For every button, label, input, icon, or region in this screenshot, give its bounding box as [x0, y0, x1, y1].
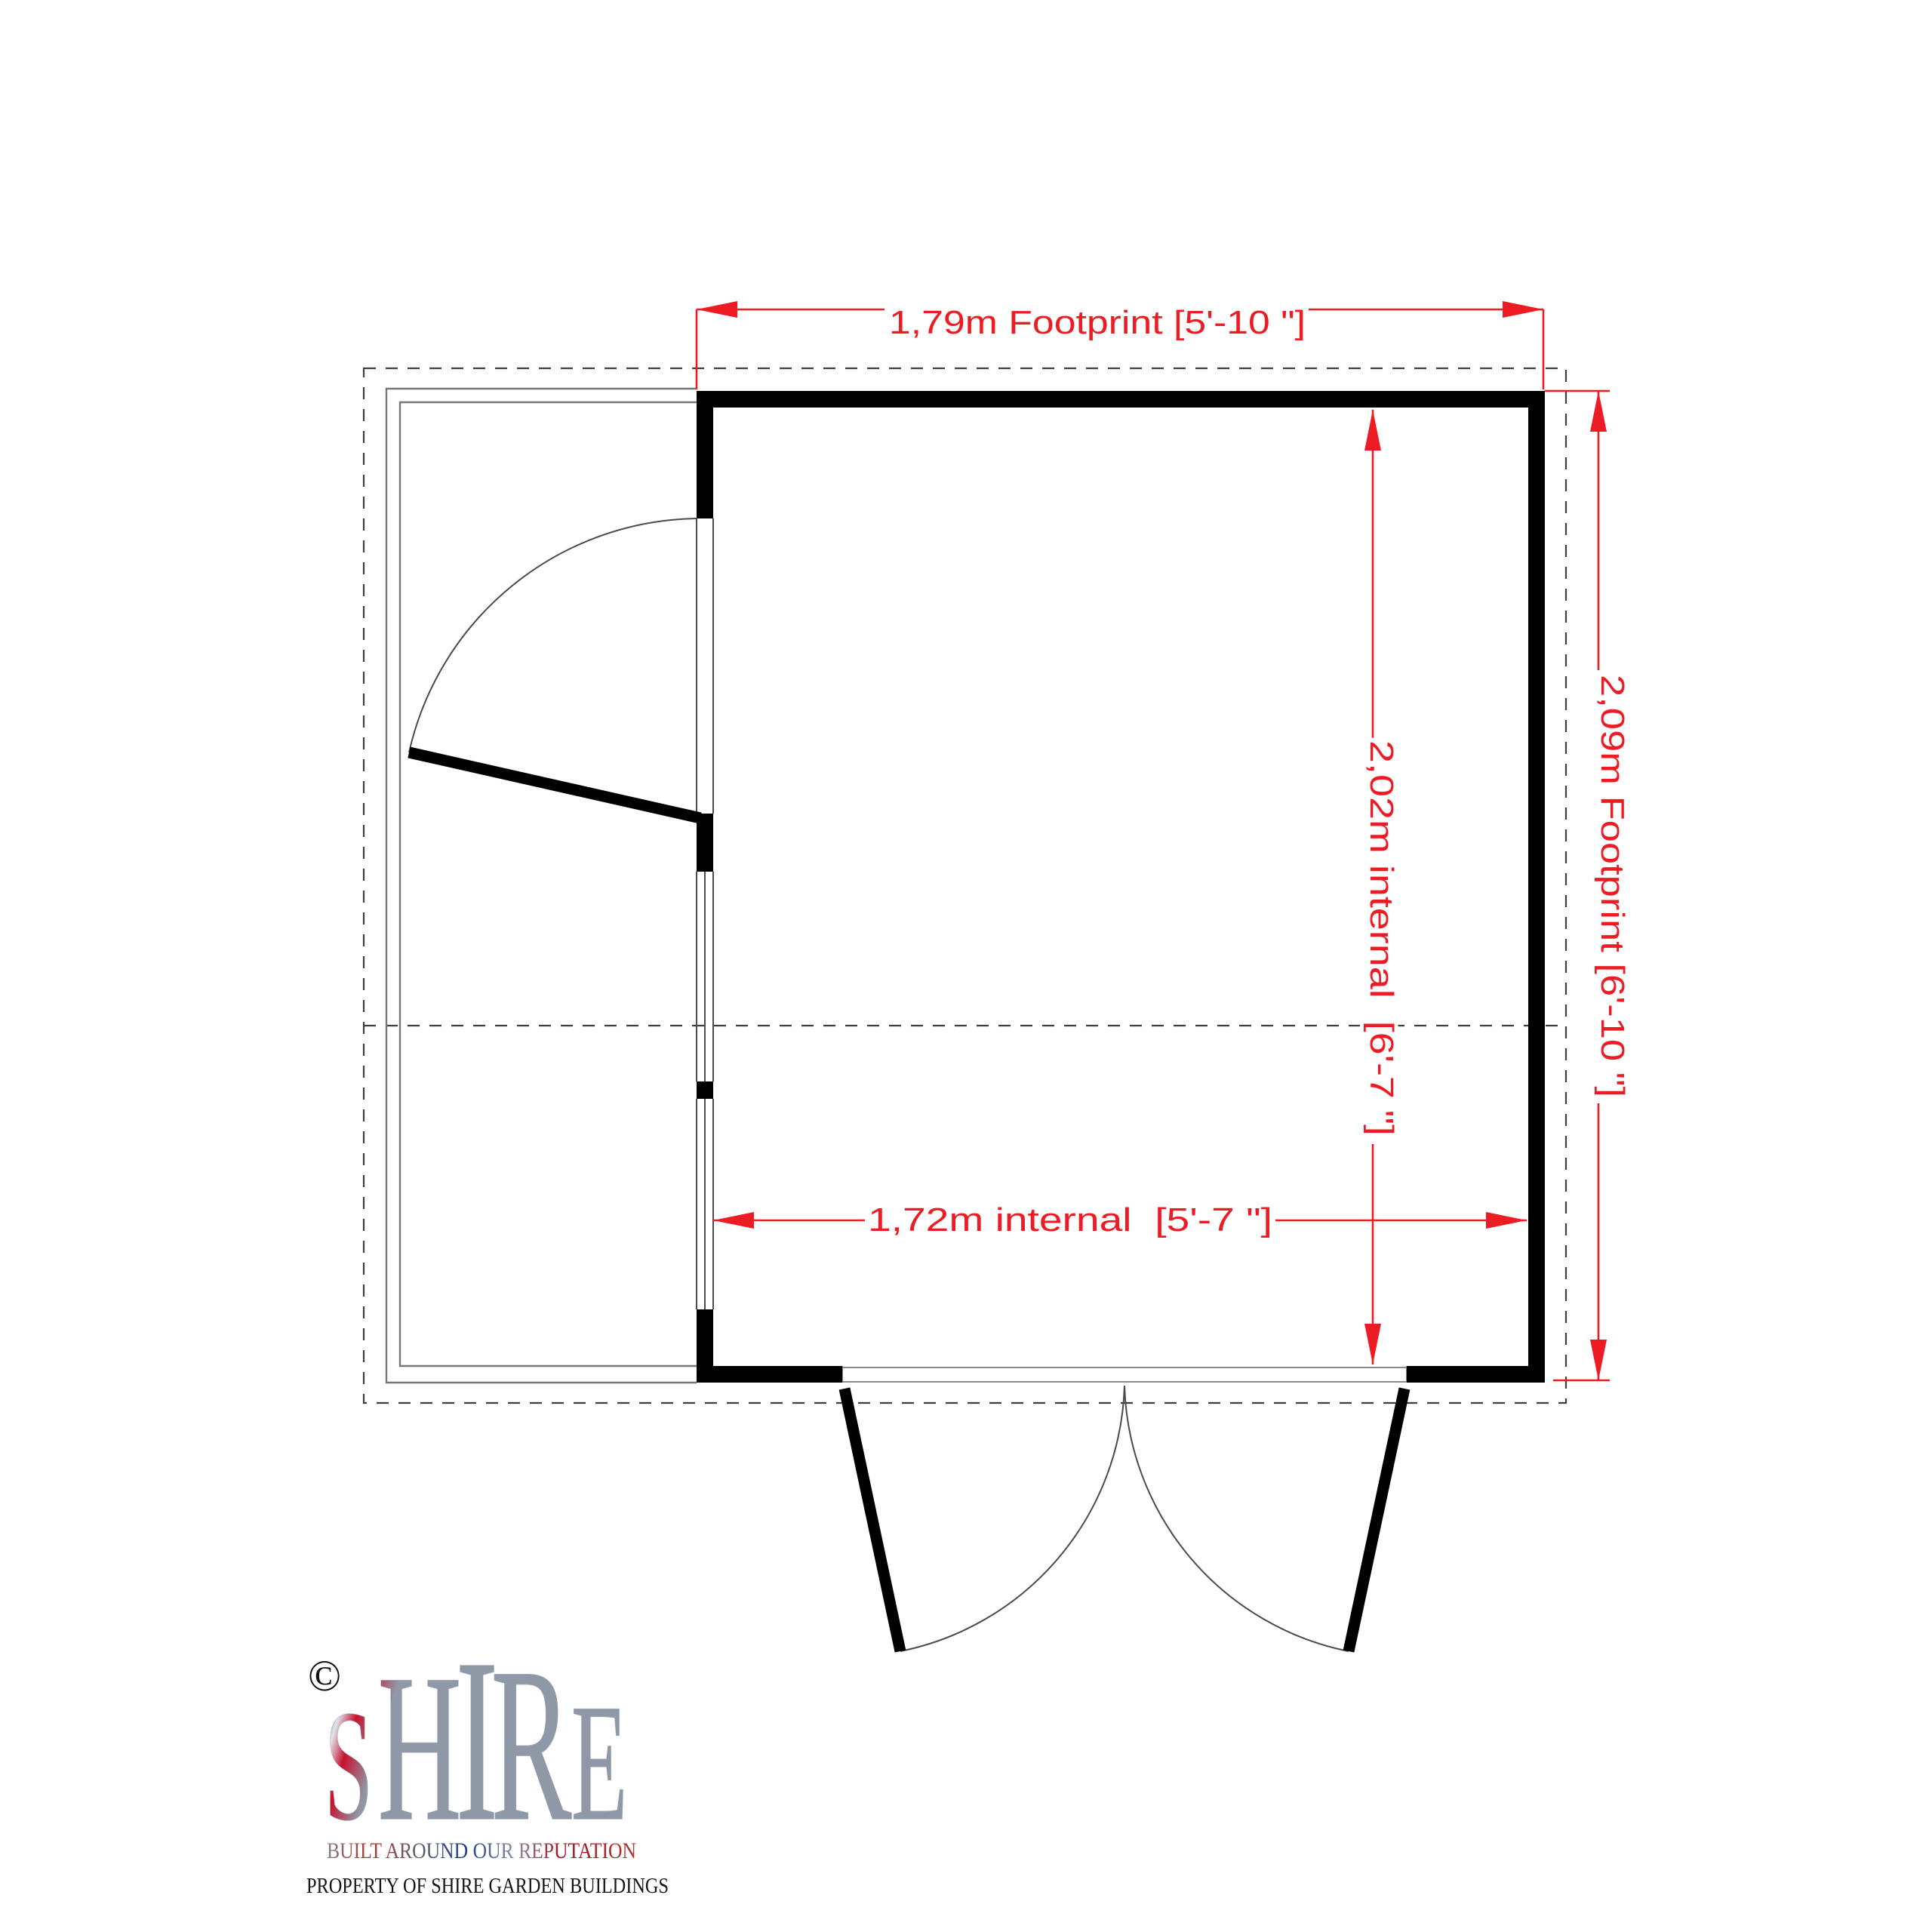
arrow-right-icon	[1503, 301, 1543, 318]
property-notice: PROPERTY OF SHIRE GARDEN BUILDINGS	[306, 1874, 669, 1898]
arrow-up-icon	[1590, 391, 1607, 432]
logo-letter-h: H	[377, 1631, 461, 1865]
logo-letter-r: R	[491, 1623, 571, 1866]
wall-post-bottom-left	[697, 1309, 713, 1383]
side-canopy-inner-line	[400, 402, 697, 1366]
front-double-doors	[844, 1386, 1404, 1651]
window-mullion-block	[697, 1081, 713, 1099]
arrow-left-icon	[713, 1212, 754, 1229]
front-door-right-leaf	[1349, 1389, 1404, 1651]
front-door-threshold	[842, 1366, 1407, 1383]
left-wall-window-lines	[697, 518, 713, 1309]
arrow-right-icon	[1486, 1212, 1527, 1229]
side-door	[409, 518, 700, 818]
dim-label-footprint-width: 1,79m Footprint [5'-10 "]	[889, 304, 1306, 341]
dim-label-internal-width: 1,72m internal [5'-7 "]	[868, 1201, 1272, 1238]
shire-logo: S H I R E	[325, 1611, 628, 1870]
side-door-swing-arc	[409, 518, 697, 752]
dim-label-footprint-depth: 2,09m Footprint [6'-10 "]	[1594, 675, 1631, 1097]
front-door-left-swing-arc	[900, 1386, 1124, 1651]
wall-bottom-left	[697, 1366, 842, 1383]
arrow-down-icon	[1590, 1340, 1607, 1380]
floor-plan-drawing: 1,79m Footprint [5'-10 "] 2,09m Footprin…	[0, 0, 1932, 1932]
arrow-up-icon	[1364, 410, 1381, 451]
arrow-left-icon	[697, 301, 737, 318]
front-door-right-swing-arc	[1124, 1386, 1349, 1651]
wall-post-top-left	[697, 391, 713, 518]
logo-letter-e: E	[571, 1669, 628, 1856]
wall-right	[1528, 391, 1545, 1383]
dim-label-internal-depth: 2,02m internal [6'-7 "]	[1363, 740, 1400, 1136]
side-canopy-outer-line	[386, 389, 697, 1383]
side-door-leaf	[409, 752, 700, 818]
logo-tagline: BUILT AROUND OUR REPUTATION	[327, 1838, 636, 1863]
wall-top	[697, 391, 1545, 408]
logo-letter-s: S	[325, 1678, 373, 1854]
wall-bottom-right	[1407, 1366, 1545, 1383]
front-door-left-leaf	[844, 1389, 900, 1651]
branding-block: © S H I R E BUILT AROUND OUR REPUTATION …	[306, 1611, 669, 1898]
side-canopy	[386, 389, 697, 1383]
arrow-down-icon	[1364, 1324, 1381, 1364]
